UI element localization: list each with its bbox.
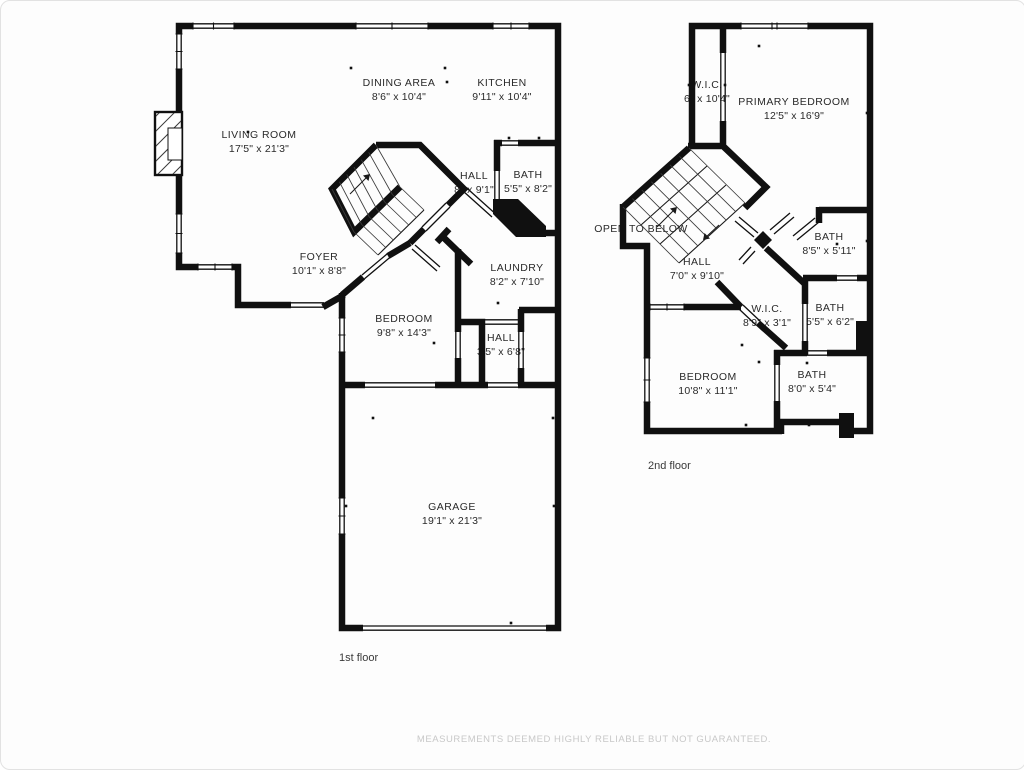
staircase-icon-first-floor xyxy=(332,145,464,255)
room-name: KITCHEN xyxy=(472,77,531,89)
room-name: HALL xyxy=(477,332,525,344)
room-name: W.I.C. xyxy=(743,303,791,315)
floorplan-page: LIVING ROOM 17'5" x 21'3" DINING AREA 8'… xyxy=(0,0,1024,770)
room-label-hall-2f: HALL 7'0" x 9'10" xyxy=(670,256,724,282)
room-label-kitchen: KITCHEN 9'11" x 10'4" xyxy=(472,77,531,103)
windows xyxy=(644,23,858,403)
room-name: LAUNDRY xyxy=(490,262,544,274)
solid-wall-block xyxy=(493,199,546,237)
room-dims: 8" x 9'1" xyxy=(454,184,494,196)
room-name: HALL xyxy=(454,170,494,182)
wall-corner-block xyxy=(839,413,854,438)
room-label-foyer: FOYER 10'1" x 8'8" xyxy=(292,251,346,277)
solid-wall-block xyxy=(856,321,870,353)
room-dims: 8'9" x 3'1" xyxy=(743,317,791,329)
room-label-open-to-below: OPEN TO BELOW xyxy=(594,223,688,235)
room-dims: 9'8" x 14'3" xyxy=(375,327,432,339)
wall-junction-block xyxy=(754,231,772,249)
room-label-hall-rear: HALL 3'5" x 6'8" xyxy=(477,332,525,358)
room-label-bath-1f: BATH 5'5" x 8'2" xyxy=(504,169,552,195)
floor2-caption: 2nd floor xyxy=(648,460,691,472)
room-name: PRIMARY BEDROOM xyxy=(738,96,849,108)
room-name: BATH xyxy=(504,169,552,181)
room-name: HALL xyxy=(670,256,724,268)
room-name: BEDROOM xyxy=(375,313,432,325)
room-label-primary-bedroom: PRIMARY BEDROOM 12'5" x 16'9" xyxy=(738,96,849,122)
room-dims: 8'2" x 7'10" xyxy=(490,276,544,288)
stairs-direction-arrow xyxy=(703,233,710,240)
room-label-bedroom-2f: BEDROOM 10'8" x 11'1" xyxy=(678,371,737,397)
room-name: BATH xyxy=(788,369,836,381)
garage-door xyxy=(363,626,546,630)
room-dims: 5'5" x 6'2" xyxy=(806,316,854,328)
room-name: W.I.C. xyxy=(684,79,730,91)
room-name: BATH xyxy=(802,231,855,243)
disclaimer-text: MEASUREMENTS DEEMED HIGHLY RELIABLE BUT … xyxy=(417,734,771,745)
room-label-bedroom-1f: BEDROOM 9'8" x 14'3" xyxy=(375,313,432,339)
room-label-hall-1f: HALL 8" x 9'1" xyxy=(454,170,494,196)
room-dims: 19'1" x 21'3" xyxy=(422,515,482,527)
room-dims: 7'0" x 9'10" xyxy=(670,270,724,282)
fireplace-icon xyxy=(146,96,206,191)
room-dims: 10'8" x 11'1" xyxy=(678,385,737,397)
room-name: OPEN TO BELOW xyxy=(594,223,688,235)
room-dims: 8'0" x 5'4" xyxy=(788,383,836,395)
stairs-direction-arrow xyxy=(670,207,677,214)
room-name: LIVING ROOM xyxy=(222,129,297,141)
room-label-wic2: W.I.C. 8'9" x 3'1" xyxy=(743,303,791,329)
room-name: BEDROOM xyxy=(678,371,737,383)
room-label-wic: W.I.C. 6" x 10'4" xyxy=(684,79,730,105)
floor1-caption: 1st floor xyxy=(339,652,378,664)
room-name: GARAGE xyxy=(422,501,482,513)
room-name: DINING AREA xyxy=(363,77,436,89)
room-dims: 12'5" x 16'9" xyxy=(738,110,849,122)
room-label-laundry: LAUNDRY 8'2" x 7'10" xyxy=(490,262,544,288)
staircase-icon-second-floor xyxy=(623,148,745,263)
room-dims: 9'11" x 10'4" xyxy=(472,91,531,103)
room-label-bath-upper: BATH 8'5" x 5'11" xyxy=(802,231,855,257)
room-dims: 5'5" x 8'2" xyxy=(504,183,552,195)
room-dims: 6" x 10'4" xyxy=(684,93,730,105)
floorplan-drawing xyxy=(1,1,1024,769)
room-dims: 8'5" x 5'11" xyxy=(802,245,855,257)
room-label-bath-mid: BATH 5'5" x 6'2" xyxy=(806,302,854,328)
room-name: FOYER xyxy=(292,251,346,263)
stairs-direction-arrow xyxy=(363,174,370,181)
exterior-walls xyxy=(179,26,558,628)
room-dims: 3'5" x 6'8" xyxy=(477,346,525,358)
room-label-dining-area: DINING AREA 8'6" x 10'4" xyxy=(363,77,436,103)
room-label-garage: GARAGE 19'1" x 21'3" xyxy=(422,501,482,527)
room-dims: 10'1" x 8'8" xyxy=(292,265,346,277)
room-dims: 17'5" x 21'3" xyxy=(222,143,297,155)
first-floor-plan xyxy=(146,23,561,631)
room-label-bath-lower: BATH 8'0" x 5'4" xyxy=(788,369,836,395)
room-label-living-room: LIVING ROOM 17'5" x 21'3" xyxy=(222,129,297,155)
room-name: BATH xyxy=(806,302,854,314)
room-dims: 8'6" x 10'4" xyxy=(363,91,436,103)
